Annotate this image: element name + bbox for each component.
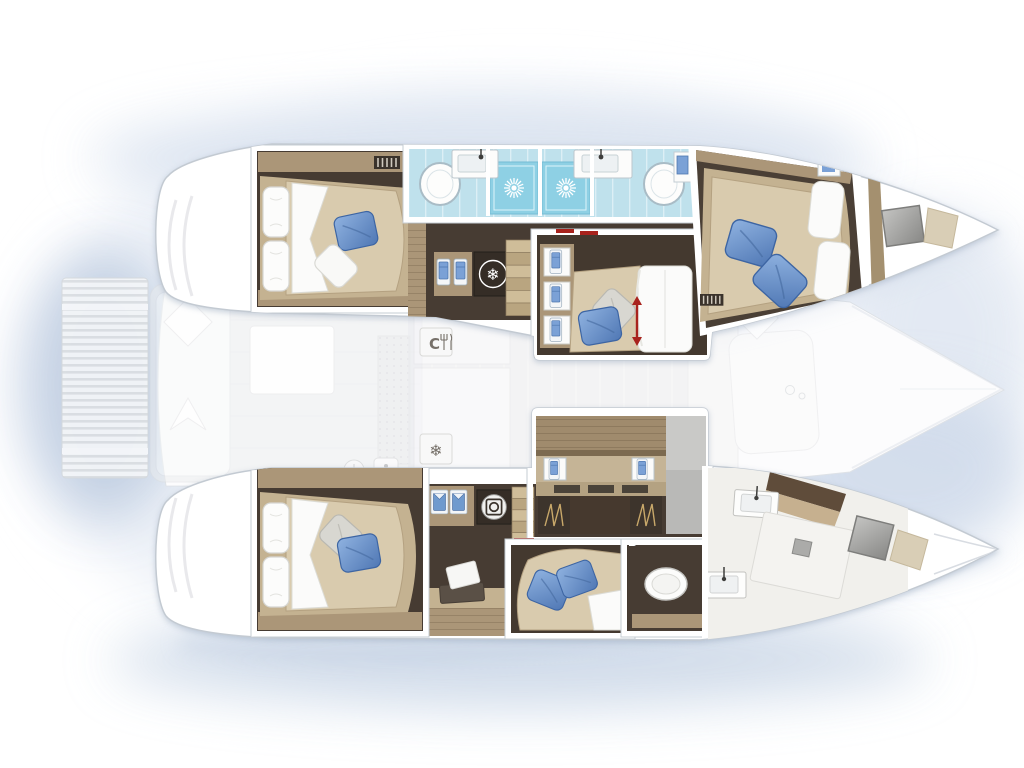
duvet-panel-1 <box>807 180 845 239</box>
towel-icon-4 <box>550 250 562 273</box>
shirt-icon-1 <box>431 490 448 514</box>
faucet-dot <box>599 155 604 160</box>
shelf-niches <box>544 248 570 344</box>
washing-machine-icon <box>477 490 511 524</box>
partition-2 <box>538 148 542 216</box>
snowflake-icon-galley: ❄ <box>429 441 442 460</box>
sink-left <box>452 145 498 178</box>
cabinet-edge <box>536 450 666 456</box>
stbd-wardrobe <box>514 407 713 545</box>
aft-platform <box>62 278 148 478</box>
gray-panel-upper <box>666 416 706 470</box>
faucet-dot <box>479 155 484 160</box>
shelf-slot-3 <box>622 485 648 493</box>
shelf-slot-2 <box>588 485 614 493</box>
port-bathroom <box>403 143 701 223</box>
port-aft-cabin <box>251 145 429 313</box>
shower-drain <box>792 539 812 557</box>
door-track-mark-2 <box>580 231 598 235</box>
platform-divider-top <box>62 304 148 310</box>
cockpit-table <box>250 326 334 394</box>
stbd-aft-cabin <box>251 461 429 637</box>
partition-1 <box>486 148 490 216</box>
head-pillow-2 <box>263 557 289 607</box>
wood-band <box>632 614 704 628</box>
towel-icon-5 <box>550 284 562 307</box>
sun-icon-left <box>504 178 524 198</box>
toilet-bowl <box>652 574 680 594</box>
faucet-dot <box>722 577 726 581</box>
vent-grille-icon <box>374 156 400 169</box>
blue-pillow <box>336 533 381 573</box>
partition-wall <box>702 466 708 638</box>
platform-divider-bottom <box>62 448 148 454</box>
sun-icon-right <box>556 178 576 198</box>
towel-icon-9 <box>637 459 647 479</box>
towel-icon-6 <box>550 318 562 341</box>
sink-right <box>574 145 632 178</box>
port-mid-cabin <box>531 229 713 361</box>
floorplan-canvas: C ❄ ❄ <box>0 0 1024 768</box>
hanging-locker-1 <box>538 496 570 534</box>
wood-band-top <box>258 468 422 488</box>
lounge-pad <box>728 329 820 455</box>
partition-3 <box>590 148 594 216</box>
duvet-panel-2 <box>813 240 851 301</box>
towel-icon-8 <box>549 459 559 479</box>
blue-pillow <box>333 210 379 252</box>
sink-lower <box>704 567 746 598</box>
door-track-mark-1 <box>556 229 574 233</box>
head-pillow-1 <box>263 503 289 553</box>
snowflake-icon-corridor: ❄ <box>486 265 499 284</box>
faucet-stem <box>756 486 757 497</box>
bow-hatch <box>882 206 925 247</box>
shirt-icon-2 <box>450 490 467 514</box>
galley-icon: C <box>429 335 440 353</box>
blue-pillow <box>577 306 622 346</box>
towel-icon-3 <box>677 156 688 174</box>
stbd-toilet-room <box>621 539 715 637</box>
wardrobe-floor <box>570 496 630 534</box>
head-pillow-1 <box>263 187 289 237</box>
mat-dots <box>378 336 410 464</box>
head-pillow-2 <box>263 241 289 291</box>
hanging-locker-2 <box>630 496 662 534</box>
shelf-slot-1 <box>554 485 580 493</box>
duvet-corner <box>588 590 622 630</box>
towel-icon-2 <box>454 259 467 285</box>
stbd-mid-berth <box>505 539 635 639</box>
vent-grille-icon <box>700 294 723 306</box>
towel-icon-1 <box>437 259 450 285</box>
